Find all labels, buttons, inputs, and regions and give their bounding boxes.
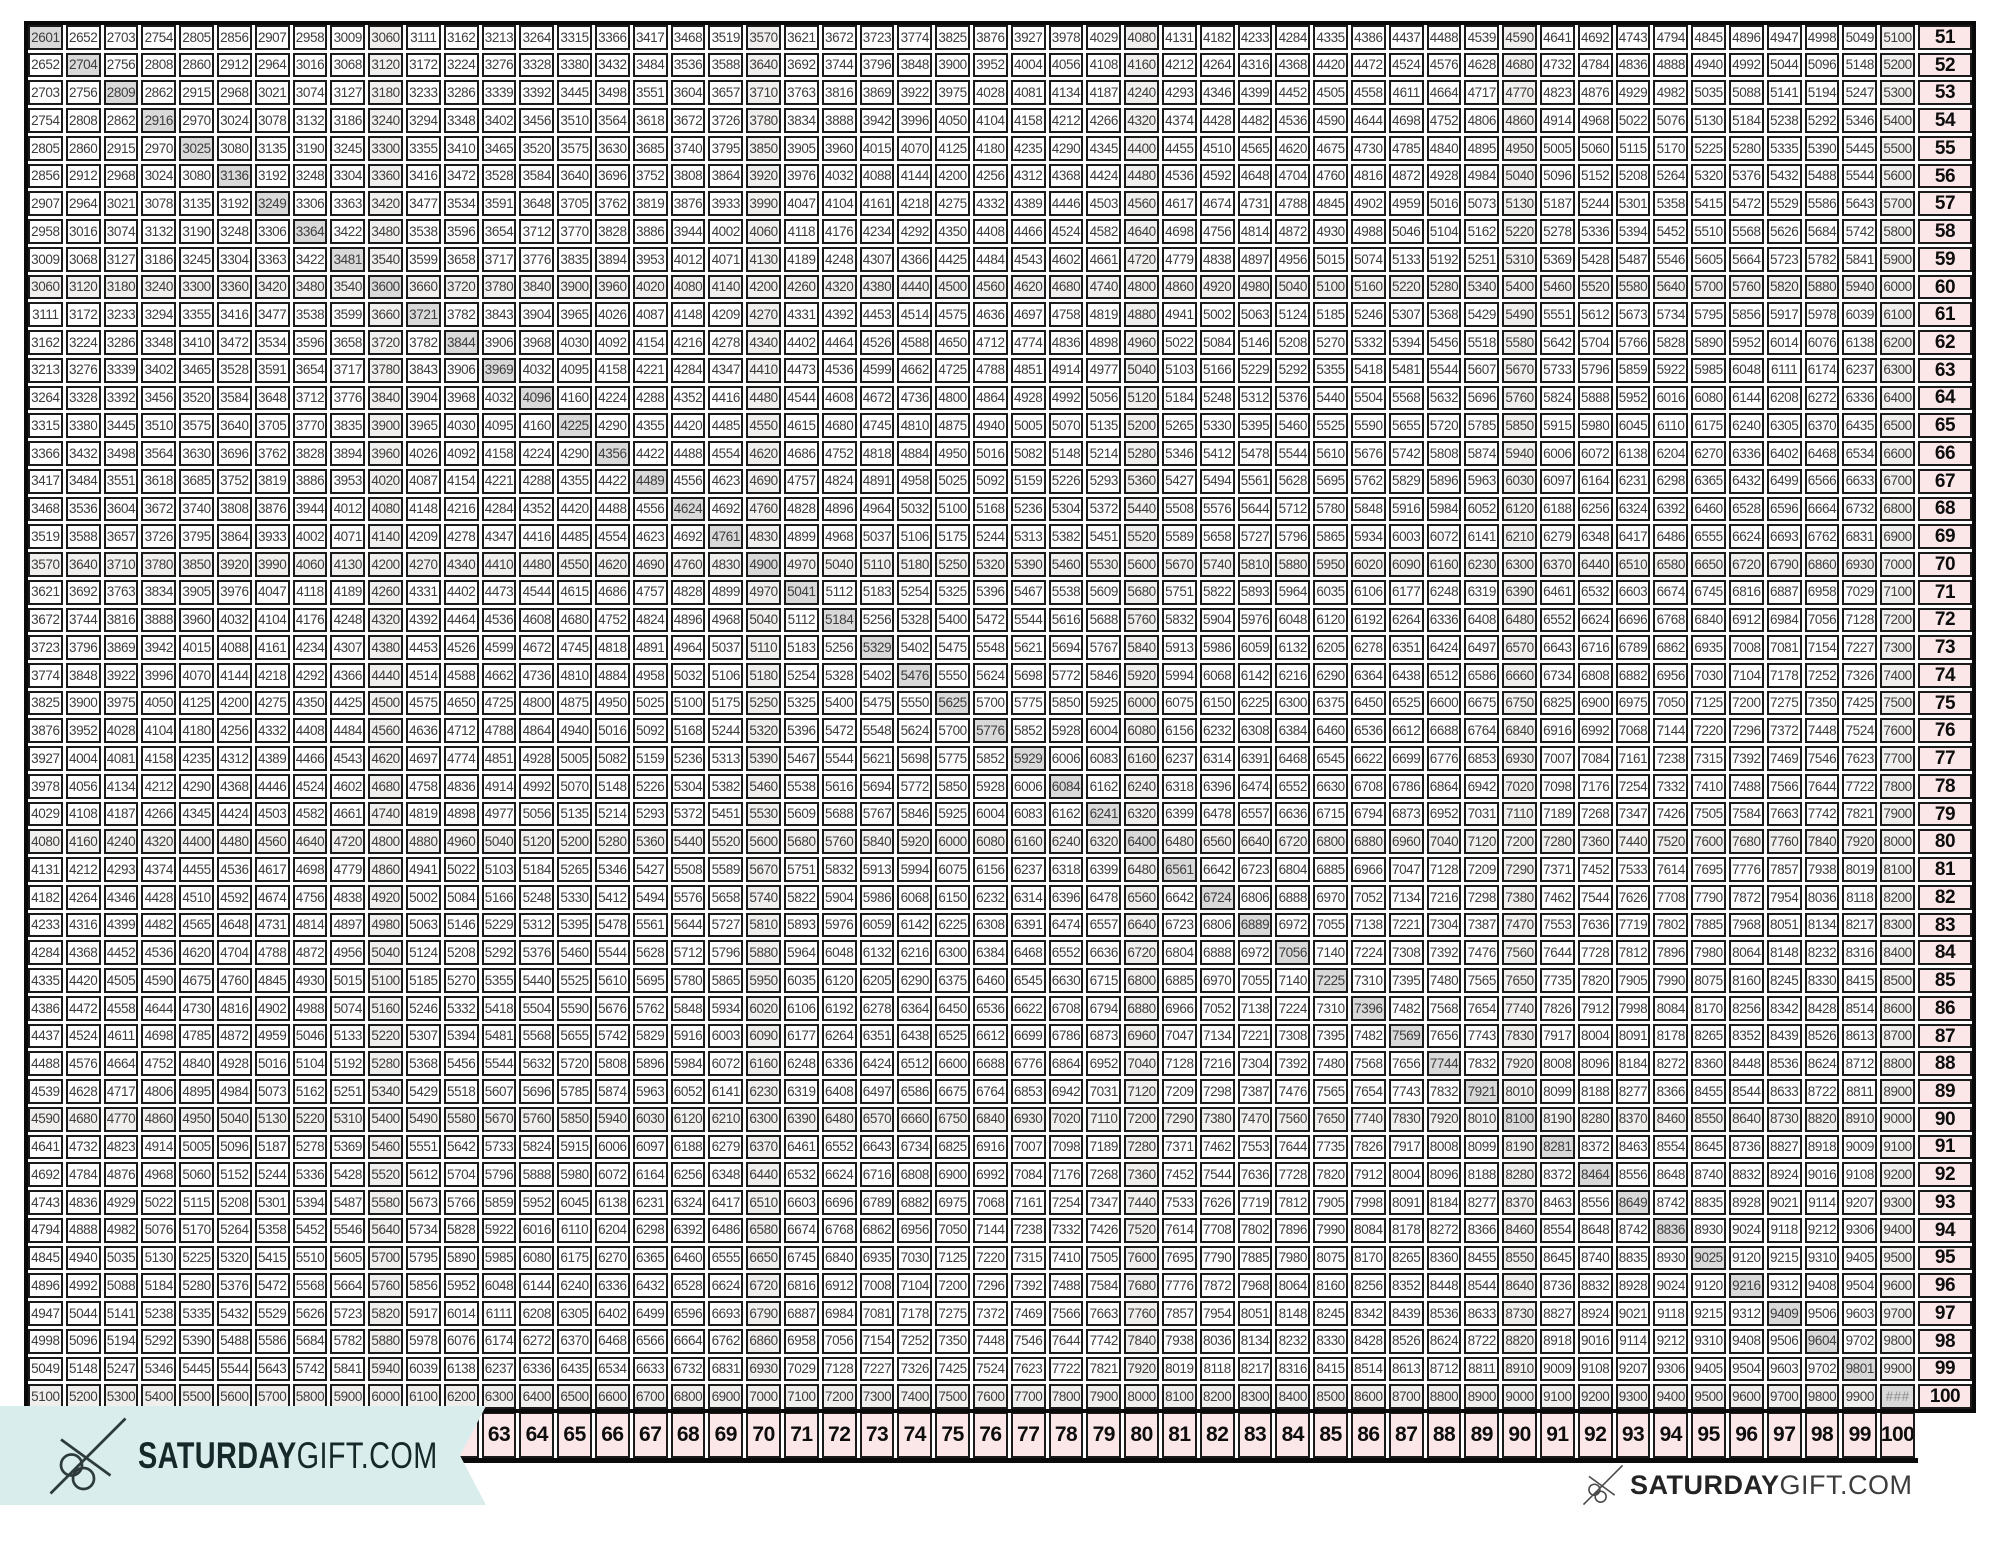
product-cell: 5037 <box>860 524 895 549</box>
product-cell: 7840 <box>1805 829 1840 854</box>
product-cell: 5185 <box>406 968 441 993</box>
product-cell: 4940 <box>66 1246 101 1271</box>
product-cell: 7161 <box>1011 1190 1046 1215</box>
product-cell: 5247 <box>1842 80 1877 105</box>
product-cell: 6142 <box>897 913 932 938</box>
product-cell: 8556 <box>1578 1190 1613 1215</box>
product-cell: 8280 <box>1502 1162 1537 1187</box>
product-cell: 5980 <box>1578 413 1613 438</box>
product-cell: 4900 <box>746 552 781 577</box>
product-cell: 6232 <box>1200 718 1235 743</box>
product-cell: 3481 <box>330 247 365 272</box>
product-cell: 7120 <box>1124 1079 1159 1104</box>
product-cell: 3726 <box>141 524 176 549</box>
product-cell: 4959 <box>255 1024 290 1049</box>
product-cell: 7663 <box>1086 1301 1121 1326</box>
product-cell: 6723 <box>1238 857 1273 882</box>
product-cell: 4420 <box>671 413 706 438</box>
product-cell: 5390 <box>179 1329 214 1354</box>
product-cell: 5775 <box>935 746 970 771</box>
product-cell: 8004 <box>1389 1162 1424 1187</box>
product-cell: 7347 <box>1616 802 1651 827</box>
product-cell: 8722 <box>1464 1329 1499 1354</box>
product-cell: 5096 <box>1805 53 1840 78</box>
brand-light: GIFT.COM <box>1780 1470 1913 1500</box>
product-cell: 6319 <box>784 1079 819 1104</box>
product-cell: 3484 <box>633 53 668 78</box>
product-cell: 5070 <box>557 774 592 799</box>
product-cell: 5530 <box>1086 552 1121 577</box>
product-cell: 3422 <box>293 247 328 272</box>
product-cell: 3402 <box>141 358 176 383</box>
product-cell: 4876 <box>104 1162 139 1187</box>
product-cell: 6272 <box>519 1329 554 1354</box>
product-cell: 7470 <box>1238 1107 1273 1132</box>
product-cell: 4505 <box>1313 80 1348 105</box>
product-cell: 6642 <box>1200 857 1235 882</box>
product-cell: 5840 <box>860 829 895 854</box>
product-cell: 7476 <box>1275 1079 1310 1104</box>
product-cell: 7068 <box>1616 718 1651 743</box>
product-cell: 5330 <box>557 885 592 910</box>
product-cell: 3477 <box>255 302 290 327</box>
product-cell: 8514 <box>1351 1357 1386 1382</box>
product-cell: 6138 <box>595 1190 630 1215</box>
product-cell: 6528 <box>1729 497 1764 522</box>
product-cell: 4335 <box>1313 25 1348 50</box>
product-cell: 6660 <box>897 1107 932 1132</box>
product-cell: 6860 <box>746 1329 781 1354</box>
product-cell: 5246 <box>1351 302 1386 327</box>
product-cell: 4524 <box>66 1024 101 1049</box>
product-cell: 4615 <box>557 580 592 605</box>
product-cell: 5330 <box>1200 413 1235 438</box>
product-cell: 3717 <box>330 358 365 383</box>
product-cell: 5740 <box>746 885 781 910</box>
product-cell: 4743 <box>28 1190 63 1215</box>
product-cell: 4028 <box>973 80 1008 105</box>
product-cell: 7600 <box>1691 829 1726 854</box>
product-cell: 5035 <box>104 1246 139 1271</box>
product-cell: 5976 <box>1238 608 1273 633</box>
product-cell: 3360 <box>217 275 252 300</box>
product-cell: 6570 <box>860 1107 895 1132</box>
product-cell: 5568 <box>519 1024 554 1049</box>
product-cell: 4760 <box>746 497 781 522</box>
product-cell: 6110 <box>557 1218 592 1243</box>
product-cell: 7990 <box>1313 1218 1348 1243</box>
product-cell: 6075 <box>1162 691 1197 716</box>
product-cell: 7350 <box>1805 691 1840 716</box>
product-cell: 5605 <box>1691 247 1726 272</box>
product-cell: 7056 <box>1805 608 1840 633</box>
product-cell: 4914 <box>1540 108 1575 133</box>
product-cell: 4095 <box>557 358 592 383</box>
product-cell: 5270 <box>1313 330 1348 355</box>
product-cell: 7743 <box>1464 1024 1499 1049</box>
product-cell: 6478 <box>1086 885 1121 910</box>
product-cell: 4233 <box>1238 25 1273 50</box>
product-cell: 7920 <box>1502 1051 1537 1076</box>
product-cell: 4366 <box>897 247 932 272</box>
product-cell: 6072 <box>595 1162 630 1187</box>
product-cell: 6370 <box>1805 413 1840 438</box>
product-cell: 4284 <box>671 358 706 383</box>
product-cell: 5016 <box>973 441 1008 466</box>
product-cell: 3339 <box>482 80 517 105</box>
product-cell: 6097 <box>633 1135 668 1160</box>
product-cell: 5478 <box>595 913 630 938</box>
product-cell: 6279 <box>708 1135 743 1160</box>
product-cell: 8178 <box>1653 1024 1688 1049</box>
product-cell: 4661 <box>330 802 365 827</box>
product-cell: 4080 <box>1124 25 1159 50</box>
product-cell: 5760 <box>1124 608 1159 633</box>
product-cell: 5624 <box>897 718 932 743</box>
product-cell: 5360 <box>1124 469 1159 494</box>
product-cell: 4575 <box>935 302 970 327</box>
product-cell: 2856 <box>217 25 252 50</box>
product-cell: 5589 <box>708 857 743 882</box>
product-cell: 4884 <box>595 663 630 688</box>
product-cell: 3588 <box>66 524 101 549</box>
product-cell: 5859 <box>482 1190 517 1215</box>
product-cell: 7425 <box>935 1357 970 1382</box>
product-cell: 6630 <box>1313 774 1348 799</box>
product-cell: 6231 <box>633 1190 668 1215</box>
product-cell: 8930 <box>1691 1218 1726 1243</box>
product-cell: 6960 <box>1389 829 1424 854</box>
product-cell: 4180 <box>179 718 214 743</box>
product-cell: 6120 <box>1502 497 1537 522</box>
product-cell: 4608 <box>822 386 857 411</box>
product-cell: 4144 <box>217 663 252 688</box>
product-cell: 8700 <box>1880 1024 1915 1049</box>
product-cell: 9702 <box>1805 1357 1840 1382</box>
product-cell: 6764 <box>973 1079 1008 1104</box>
product-cell: 5148 <box>595 774 630 799</box>
product-cell: 4488 <box>671 441 706 466</box>
column-header-cell: 88 <box>1427 1412 1462 1458</box>
product-cell: 4050 <box>141 691 176 716</box>
product-cell: 6800 <box>671 1384 706 1409</box>
product-cell: 4640 <box>293 829 328 854</box>
product-cell: 5934 <box>708 996 743 1021</box>
product-cell: 9506 <box>1767 1329 1802 1354</box>
product-cell: 6141 <box>1464 524 1499 549</box>
product-cell: 7954 <box>1767 885 1802 910</box>
product-cell: 3920 <box>746 164 781 189</box>
product-cell: 4884 <box>897 441 932 466</box>
product-cell: 8096 <box>1578 1051 1613 1076</box>
product-cell: 4320 <box>368 608 403 633</box>
product-cell: 7030 <box>1691 663 1726 688</box>
column-header-cell: 80 <box>1124 1412 1159 1458</box>
product-cell: 6068 <box>897 885 932 910</box>
product-cell: 6241 <box>1086 802 1121 827</box>
product-cell: 8232 <box>1275 1329 1310 1354</box>
product-cell: 6039 <box>1842 302 1877 327</box>
product-cell: 3564 <box>141 441 176 466</box>
row-header-cell: 57 <box>1918 191 1972 216</box>
product-cell: 6708 <box>1049 996 1084 1021</box>
product-cell: 9120 <box>1691 1273 1726 1298</box>
product-cell: 4012 <box>330 497 365 522</box>
product-cell: 3648 <box>255 386 290 411</box>
product-cell: 8084 <box>1351 1218 1386 1243</box>
product-cell: 8624 <box>1805 1051 1840 1076</box>
product-cell: 5900 <box>330 1384 365 1409</box>
product-cell: 5340 <box>368 1079 403 1104</box>
product-cell: 4641 <box>1540 25 1575 50</box>
product-cell: 4891 <box>860 469 895 494</box>
product-cell: 6014 <box>1767 330 1802 355</box>
product-cell: 4980 <box>1238 275 1273 300</box>
product-cell: 8217 <box>1238 1357 1273 1382</box>
product-cell: 4838 <box>330 885 365 910</box>
product-cell: 4697 <box>1011 302 1046 327</box>
product-cell: 4864 <box>973 386 1008 411</box>
product-cell: 7275 <box>1767 691 1802 716</box>
product-cell: 4940 <box>1691 53 1726 78</box>
product-cell: 4182 <box>1200 25 1235 50</box>
product-cell: 9000 <box>1880 1107 1915 1132</box>
product-cell: 4455 <box>1162 136 1197 161</box>
product-cell: 6106 <box>1351 580 1386 605</box>
product-cell: 5120 <box>1124 386 1159 411</box>
product-cell: 8277 <box>1464 1190 1499 1215</box>
product-cell: 5915 <box>557 1135 592 1160</box>
product-cell: 3538 <box>293 302 328 327</box>
product-cell: 6424 <box>1427 635 1462 660</box>
product-cell: 4592 <box>217 885 252 910</box>
product-cell: 3717 <box>482 247 517 272</box>
product-cell: 6600 <box>595 1384 630 1409</box>
product-cell: 7029 <box>784 1357 819 1382</box>
product-cell: 5005 <box>557 746 592 771</box>
product-cell: 6566 <box>633 1329 668 1354</box>
product-cell: 7524 <box>1842 718 1877 743</box>
product-cell: 5332 <box>1351 330 1386 355</box>
product-cell: 3420 <box>255 275 290 300</box>
product-cell: 3819 <box>633 191 668 216</box>
product-cell: 5248 <box>1200 386 1235 411</box>
product-cell: 5785 <box>557 1079 592 1104</box>
product-cell: 6351 <box>1389 635 1424 660</box>
product-cell: 4620 <box>1275 136 1310 161</box>
product-cell: 5040 <box>822 552 857 577</box>
product-cell: 5390 <box>1805 136 1840 161</box>
product-cell: 7826 <box>1540 996 1575 1021</box>
product-cell: 6966 <box>1162 996 1197 1021</box>
product-cell: 4160 <box>519 413 554 438</box>
product-cell: 4536 <box>217 857 252 882</box>
product-cell: 3996 <box>897 108 932 133</box>
product-cell: 5642 <box>1540 330 1575 355</box>
product-cell: 3024 <box>217 108 252 133</box>
product-cell: 5478 <box>1238 441 1273 466</box>
product-cell: 5488 <box>217 1329 252 1354</box>
product-cell: 8428 <box>1351 1329 1386 1354</box>
row-header-cell: 79 <box>1918 802 1972 827</box>
product-cell: 7480 <box>1313 1051 1348 1076</box>
product-cell: 5727 <box>708 913 743 938</box>
product-cell: 5180 <box>746 663 781 688</box>
product-cell: 7200 <box>822 1384 857 1409</box>
product-cell: 5445 <box>1842 136 1877 161</box>
product-cell: 5460 <box>1049 552 1084 577</box>
product-cell: 5698 <box>1011 663 1046 688</box>
product-cell: 6862 <box>1653 635 1688 660</box>
product-cell: 5396 <box>784 718 819 743</box>
product-cell: 5952 <box>1616 386 1651 411</box>
product-cell: 5355 <box>482 968 517 993</box>
product-cell: 7296 <box>1729 718 1764 743</box>
product-cell: 5880 <box>1275 552 1310 577</box>
product-cell: 5727 <box>1238 524 1273 549</box>
product-cell: 6958 <box>784 1329 819 1354</box>
product-cell: 3782 <box>406 330 441 355</box>
row-header-cell: 81 <box>1918 857 1972 882</box>
product-cell: 6204 <box>1653 441 1688 466</box>
product-cell: 3834 <box>784 108 819 133</box>
product-cell: 4898 <box>444 802 479 827</box>
product-cell: 4641 <box>28 1135 63 1160</box>
product-cell: 6468 <box>1275 746 1310 771</box>
product-cell: 4182 <box>28 885 63 910</box>
product-cell: 7332 <box>1653 774 1688 799</box>
product-cell: 5487 <box>1616 247 1651 272</box>
product-cell: 4026 <box>595 302 630 327</box>
product-cell: 5695 <box>1313 469 1348 494</box>
product-cell: 4536 <box>482 608 517 633</box>
product-cell: 4998 <box>1805 25 1840 50</box>
product-cell: 5467 <box>784 746 819 771</box>
product-cell: 6942 <box>1049 1079 1084 1104</box>
product-cell: 8064 <box>1729 940 1764 965</box>
product-cell: 3672 <box>671 108 706 133</box>
product-cell: 3828 <box>293 441 328 466</box>
product-cell: 5320 <box>746 718 781 743</box>
product-cell: 9108 <box>1578 1357 1613 1382</box>
product-cell: 3976 <box>784 164 819 189</box>
product-cell: 4830 <box>746 524 781 549</box>
product-cell: 7392 <box>1275 1051 1310 1076</box>
product-cell: 4590 <box>28 1107 63 1132</box>
product-cell: 4070 <box>897 136 932 161</box>
product-cell: 5841 <box>1842 247 1877 272</box>
product-cell: 5796 <box>482 1162 517 1187</box>
product-cell: 4897 <box>330 913 365 938</box>
product-cell: 7708 <box>1200 1218 1235 1243</box>
product-cell: 3600 <box>368 275 403 300</box>
product-cell: 7224 <box>1275 996 1310 1021</box>
product-cell: 4851 <box>482 746 517 771</box>
product-cell: 6804 <box>1275 857 1310 882</box>
product-cell: 6853 <box>1011 1079 1046 1104</box>
product-cell: 6392 <box>671 1218 706 1243</box>
product-cell: 7395 <box>1313 1024 1348 1049</box>
product-cell: 7220 <box>1691 718 1726 743</box>
product-cell: 4752 <box>595 608 630 633</box>
product-cell: 9215 <box>1691 1301 1726 1326</box>
product-cell: 6111 <box>1767 358 1802 383</box>
product-cell: 4392 <box>822 302 857 327</box>
product-cell: 4420 <box>66 968 101 993</box>
product-cell: 6534 <box>1842 441 1877 466</box>
product-cell: 3294 <box>141 302 176 327</box>
product-cell: 7480 <box>1427 968 1462 993</box>
product-cell: 5187 <box>255 1135 290 1160</box>
product-cell: 6000 <box>935 829 970 854</box>
product-cell: 4888 <box>66 1218 101 1243</box>
product-cell: 6164 <box>633 1162 668 1187</box>
product-cell: 4015 <box>860 136 895 161</box>
product-cell: 3422 <box>330 219 365 244</box>
product-cell: 9212 <box>1805 1218 1840 1243</box>
product-cell: 5382 <box>1049 524 1084 549</box>
product-cell: 6045 <box>1616 413 1651 438</box>
product-cell: 4650 <box>935 330 970 355</box>
product-cell: 5264 <box>1653 164 1688 189</box>
product-cell: 3304 <box>330 164 365 189</box>
product-cell: 9207 <box>1842 1190 1877 1215</box>
product-cell: 4278 <box>708 330 743 355</box>
product-cell: 7920 <box>1124 1357 1159 1382</box>
product-cell: 6100 <box>1880 302 1915 327</box>
product-cell: 6256 <box>1578 497 1613 522</box>
product-cell: 6004 <box>1086 718 1121 743</box>
product-cell: 3816 <box>104 608 139 633</box>
product-cell: 5916 <box>671 1024 706 1049</box>
product-cell: 4158 <box>482 441 517 466</box>
product-cell: 5248 <box>519 885 554 910</box>
product-cell: 8342 <box>1351 1301 1386 1326</box>
product-cell: 9118 <box>1653 1301 1688 1326</box>
product-cell: 4374 <box>141 857 176 882</box>
product-cell: 3224 <box>444 53 479 78</box>
product-cell: 6162 <box>1049 802 1084 827</box>
product-cell: 5390 <box>1011 552 1046 577</box>
product-cell: 3534 <box>255 330 290 355</box>
product-cell: 3960 <box>822 136 857 161</box>
product-cell: 4539 <box>28 1079 63 1104</box>
product-cell: 8036 <box>1805 885 1840 910</box>
product-cell: 6958 <box>1805 580 1840 605</box>
product-cell: 5184 <box>1162 386 1197 411</box>
product-cell: 2809 <box>104 80 139 105</box>
product-cell: 6110 <box>1653 413 1688 438</box>
product-cell: 5200 <box>1880 53 1915 78</box>
product-cell: 6364 <box>1351 663 1386 688</box>
product-cell: 4845 <box>28 1246 63 1271</box>
column-header-cell: 97 <box>1767 1412 1802 1458</box>
product-cell: 4623 <box>633 524 668 549</box>
product-cell: 4731 <box>255 913 290 938</box>
product-cell: 8928 <box>1616 1273 1651 1298</box>
product-cell: 6175 <box>557 1246 592 1271</box>
product-cell: 4819 <box>1086 302 1121 327</box>
product-cell: 3417 <box>633 25 668 50</box>
product-cell: 7921 <box>1464 1079 1499 1104</box>
product-cell: 6048 <box>1729 358 1764 383</box>
product-cell: 5976 <box>822 913 857 938</box>
product-cell: 7216 <box>1200 1051 1235 1076</box>
product-cell: 5950 <box>1313 552 1348 577</box>
product-cell: 4125 <box>935 136 970 161</box>
product-cell: 3835 <box>557 247 592 272</box>
product-cell: 7700 <box>1880 746 1915 771</box>
